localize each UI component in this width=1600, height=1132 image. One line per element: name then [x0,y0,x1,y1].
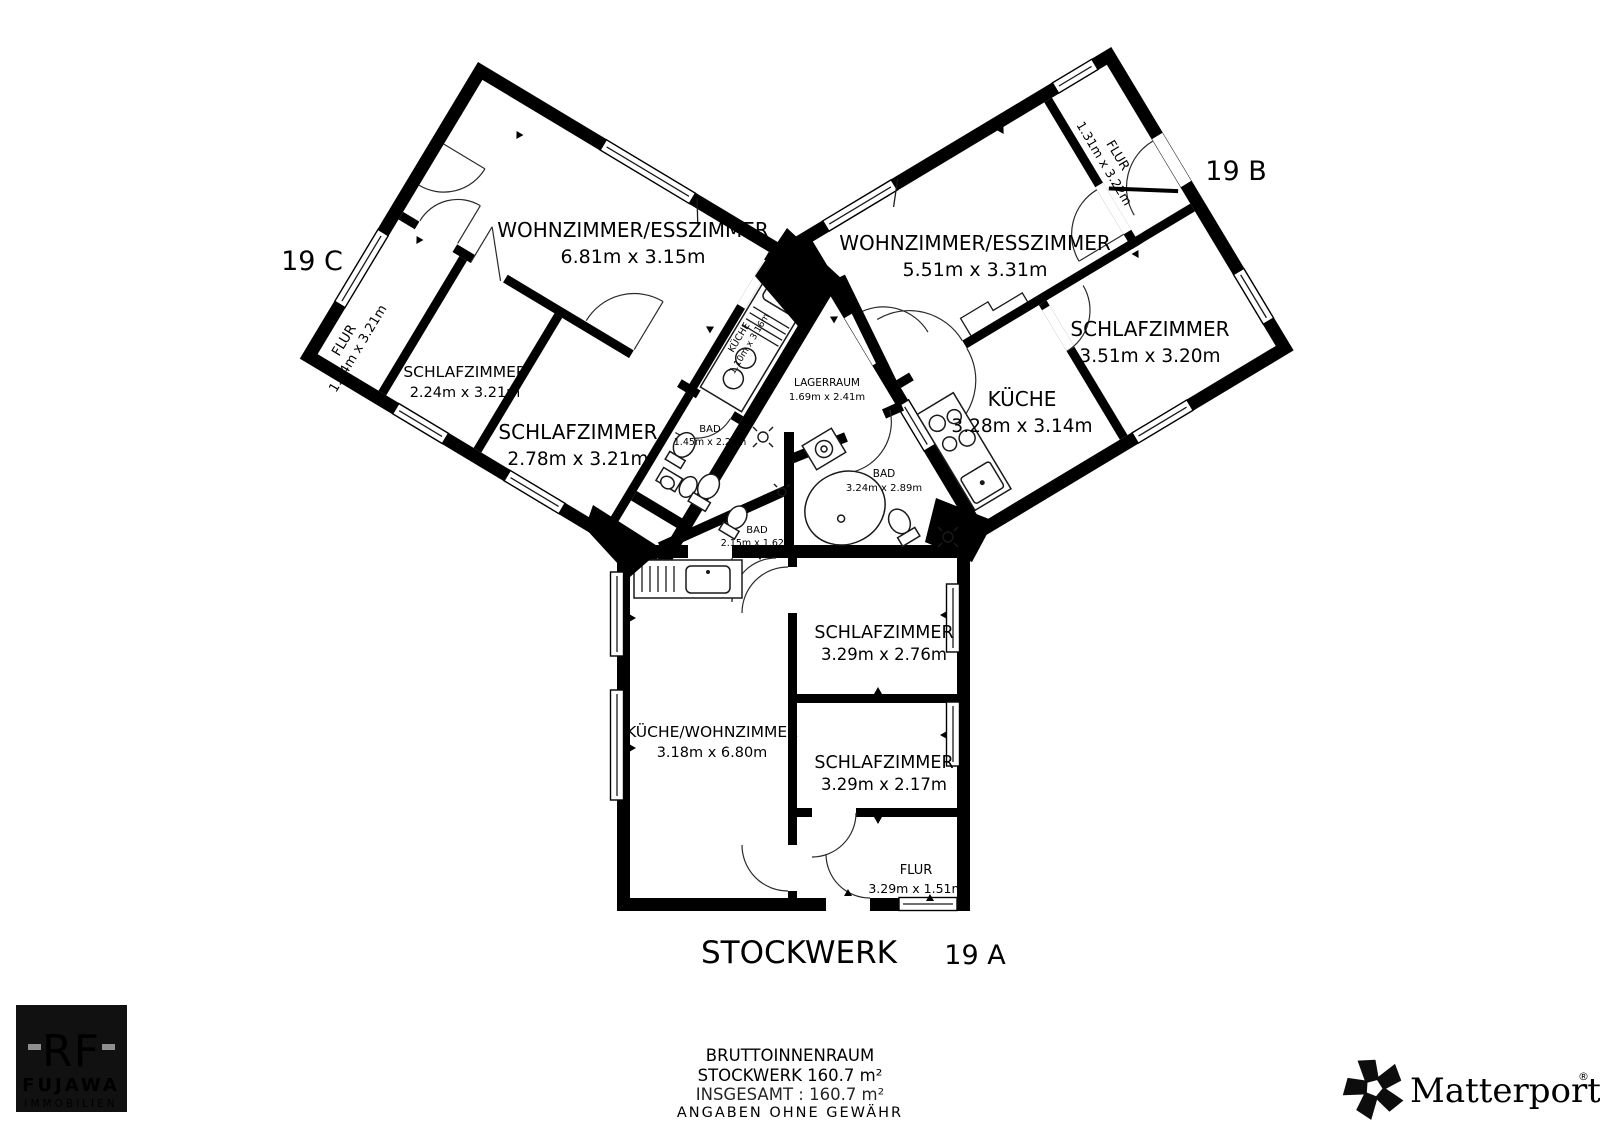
floorplan-page: WOHNZIMMER/ESSZIMMER 6.81m x 3.15m FLUR … [0,0,1600,1132]
room-dims: 6.81m x 3.15m [561,246,706,268]
room-name: WOHNZIMMER/ESSZIMMER [497,218,769,242]
room-dims: 3.28m x 3.14m [951,416,1092,437]
unit-label-19a: 19 A [944,940,1006,971]
room-name: SCHLAFZIMMER [814,623,953,643]
room-name: SCHLAFZIMMER [1070,317,1229,341]
room-name: KÜCHE [988,387,1057,411]
floorplan-canvas: WOHNZIMMER/ESSZIMMER 6.81m x 3.15m FLUR … [0,0,1600,1132]
agency-monogram: RF [42,1026,100,1077]
agency-name: FUJAWA [22,1075,120,1096]
room-name: BAD [699,424,721,435]
footer-line3: INSGESAMT : 160.7 m² [696,1085,885,1104]
room-dims: 1.45m x 2.25m [674,437,746,448]
room-name: LAGERRAUM [794,377,860,389]
room-name: SCHLAFZIMMER [498,420,657,444]
matterport-wordmark: Matterport [1410,1071,1600,1111]
room-dims: 2.78m x 3.21m [507,449,648,470]
room-name: KÜCHE/WOHNZIMMER [626,722,798,741]
room-dims: 3.51m x 3.20m [1079,346,1220,367]
room-name: WOHNZIMMER/ESSZIMMER [839,231,1111,255]
room-name: SCHLAFZIMMER [403,363,527,381]
room-name: FLUR [900,863,933,878]
kitchen-sink-icon [634,560,742,598]
room-name: SCHLAFZIMMER [814,753,953,773]
footer-line1: BRUTTOINNENRAUM [706,1046,874,1065]
floor-title: STOCKWERK [701,935,898,971]
room-dims: 5.51m x 3.31m [903,259,1048,281]
room-dims: 2.24m x 3.21m [410,385,521,401]
footer-disclaimer: ANGABEN OHNE GEWÄHR [677,1103,903,1121]
room-dims: 3.29m x 2.76m [821,645,947,664]
footer-summary: BRUTTOINNENRAUM STOCKWERK 160.7 m² INSGE… [677,1046,903,1121]
agency-logo: RF FUJAWA IMMOBILIEN [16,1005,127,1112]
room-dims: 2.15m x 1.62m [721,538,793,549]
room-name: BAD [873,468,895,480]
room-dims: 1.69m x 2.41m [789,392,865,403]
room-name: BAD [746,525,768,536]
room-dims: 3.24m x 2.89m [846,483,922,494]
footer-line2: STOCKWERK 160.7 m² [698,1066,883,1085]
room-dims: 3.29m x 2.17m [821,775,947,794]
unit-label-19b: 19 B [1205,156,1266,187]
agency-subtitle: IMMOBILIEN [24,1098,117,1110]
unit-label-19c: 19 C [281,246,343,277]
registered-mark: ® [1578,1070,1589,1083]
room-dims: 3.18m x 6.80m [657,745,768,761]
room-dims: 3.29m x 1.51m [868,881,963,896]
